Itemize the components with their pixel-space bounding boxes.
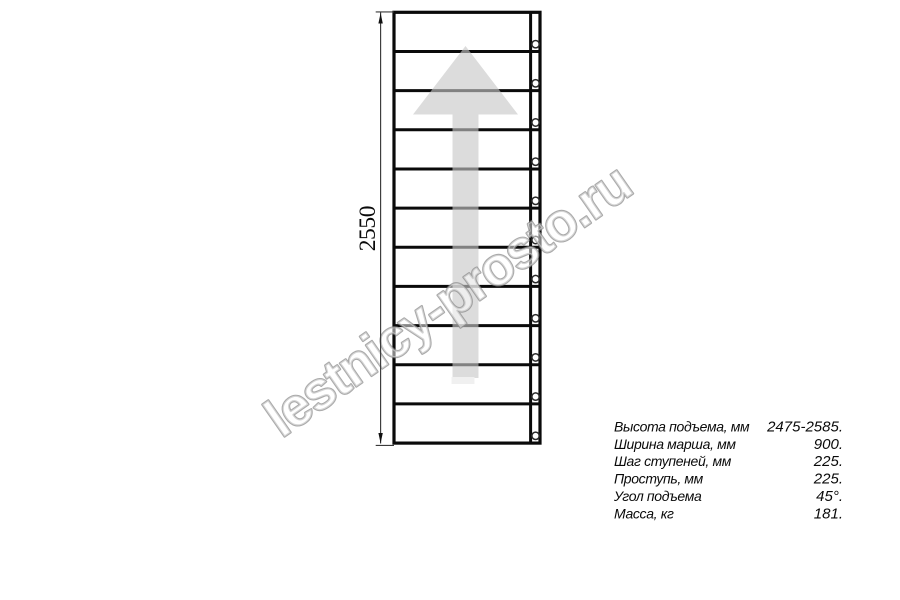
svg-text:181.: 181. [814,506,843,523]
svg-text:900.: 900. [814,436,843,453]
svg-text:Проступь, мм: Проступь, мм [614,471,704,487]
svg-text:Ширина марша, мм: Ширина марша, мм [614,436,736,452]
svg-text:Угол подъема: Угол подъема [613,488,702,504]
svg-text:225.: 225. [813,471,843,488]
svg-text:45°.: 45°. [816,488,843,505]
svg-text:2475-2585.: 2475-2585. [766,418,843,435]
svg-text:Шаг ступеней, мм: Шаг ступеней, мм [614,453,732,469]
svg-text:Высота подъема, мм: Высота подъема, мм [614,418,750,434]
svg-text:Масса, кг: Масса, кг [614,506,674,522]
svg-text:2550: 2550 [355,206,381,251]
svg-text:225.: 225. [813,453,843,470]
